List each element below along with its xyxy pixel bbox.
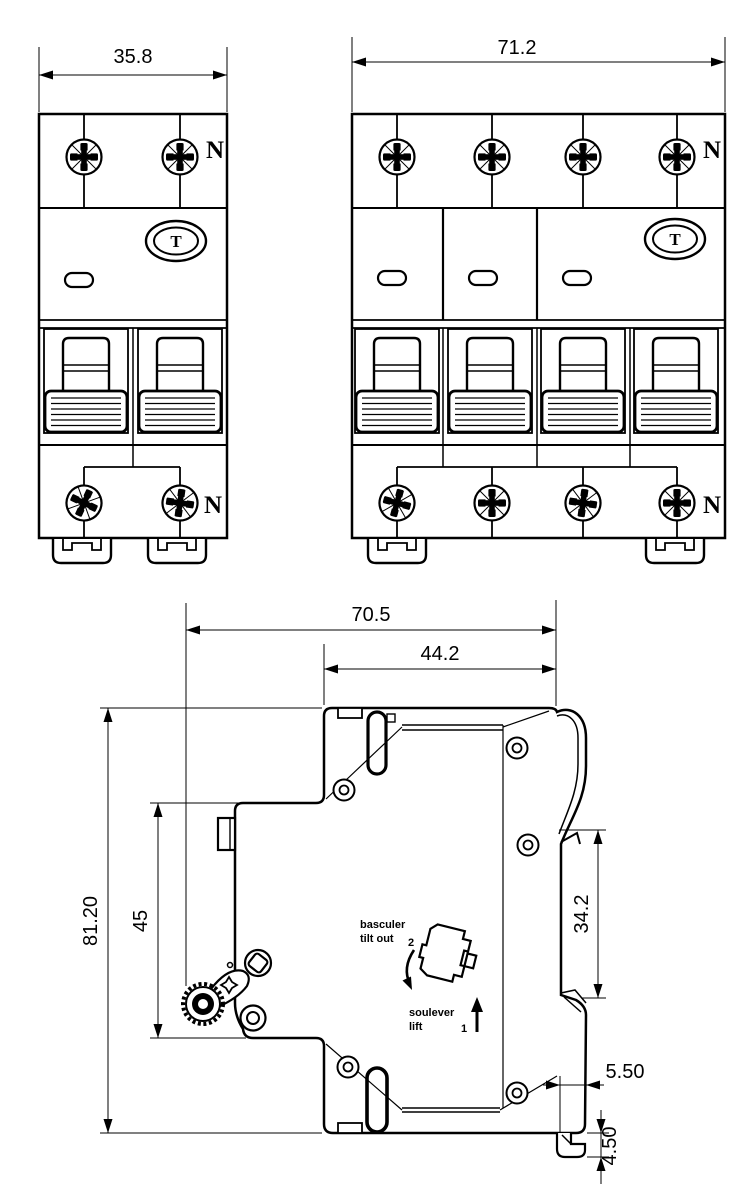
dim-label-81-20: 81.20 <box>80 896 102 946</box>
terminal-shield-tab <box>218 818 235 850</box>
neutral-label-top-2pole: N <box>206 137 224 164</box>
dim-rail-window: 34.2 <box>559 830 606 998</box>
front-view-2pole: 35.8 N T N <box>39 46 227 563</box>
test-button-label-2pole: T <box>170 232 182 251</box>
lift-step-number: 1 <box>461 1023 467 1035</box>
dim-foot-height: 4.50 <box>587 1110 621 1184</box>
tilt-label-en: tilt out <box>360 933 394 945</box>
neutral-label-bottom-2pole: N <box>204 492 222 519</box>
dim-label-5-50: 5.50 <box>606 1061 645 1083</box>
front-view-4pole: 71.2 N <box>352 37 725 563</box>
dim-overall-width-2pole: 35.8 <box>39 46 227 112</box>
side-body-outline <box>235 708 586 1133</box>
technical-drawing: 35.8 N T N <box>0 0 733 1188</box>
lever-pivot-pin <box>228 963 233 968</box>
dim-label-4-50: 4.50 <box>599 1127 621 1166</box>
dim-label-34-2: 34.2 <box>571 895 593 934</box>
lift-label-en: lift <box>409 1021 423 1033</box>
dim-label-71-2: 71.2 <box>498 37 537 59</box>
neutral-label-bottom-4pole: N <box>703 492 721 519</box>
dim-label-45: 45 <box>130 910 152 932</box>
lift-label-fr: soulever <box>409 1007 455 1019</box>
dim-overall-width-4pole: 71.2 <box>352 37 725 112</box>
test-button-2pole: T <box>146 221 206 261</box>
side-view: basculer tilt out 2 soulever lift 1 70.5 <box>80 600 644 1184</box>
mechanism-square-port <box>245 950 271 976</box>
mechanism-ring-port <box>241 1006 266 1031</box>
test-button-4pole: T <box>645 219 705 259</box>
dim-upper-depth: 44.2 <box>324 643 556 705</box>
breaker-body-2pole <box>39 114 227 538</box>
dim-label-35-8: 35.8 <box>114 46 153 68</box>
drawing-canvas: 35.8 N T N <box>0 0 733 1188</box>
breaker-body-4pole <box>352 114 725 538</box>
test-button-label-4pole: T <box>669 230 681 249</box>
tilt-label-fr: basculer <box>360 919 406 931</box>
tilt-step-number: 2 <box>408 937 414 949</box>
dim-label-44-2: 44.2 <box>421 643 460 665</box>
lever-knurled-knob <box>183 984 223 1024</box>
dim-label-70-5: 70.5 <box>352 604 391 626</box>
neutral-label-top-4pole: N <box>703 137 721 164</box>
din-clip-foot <box>557 1133 585 1157</box>
